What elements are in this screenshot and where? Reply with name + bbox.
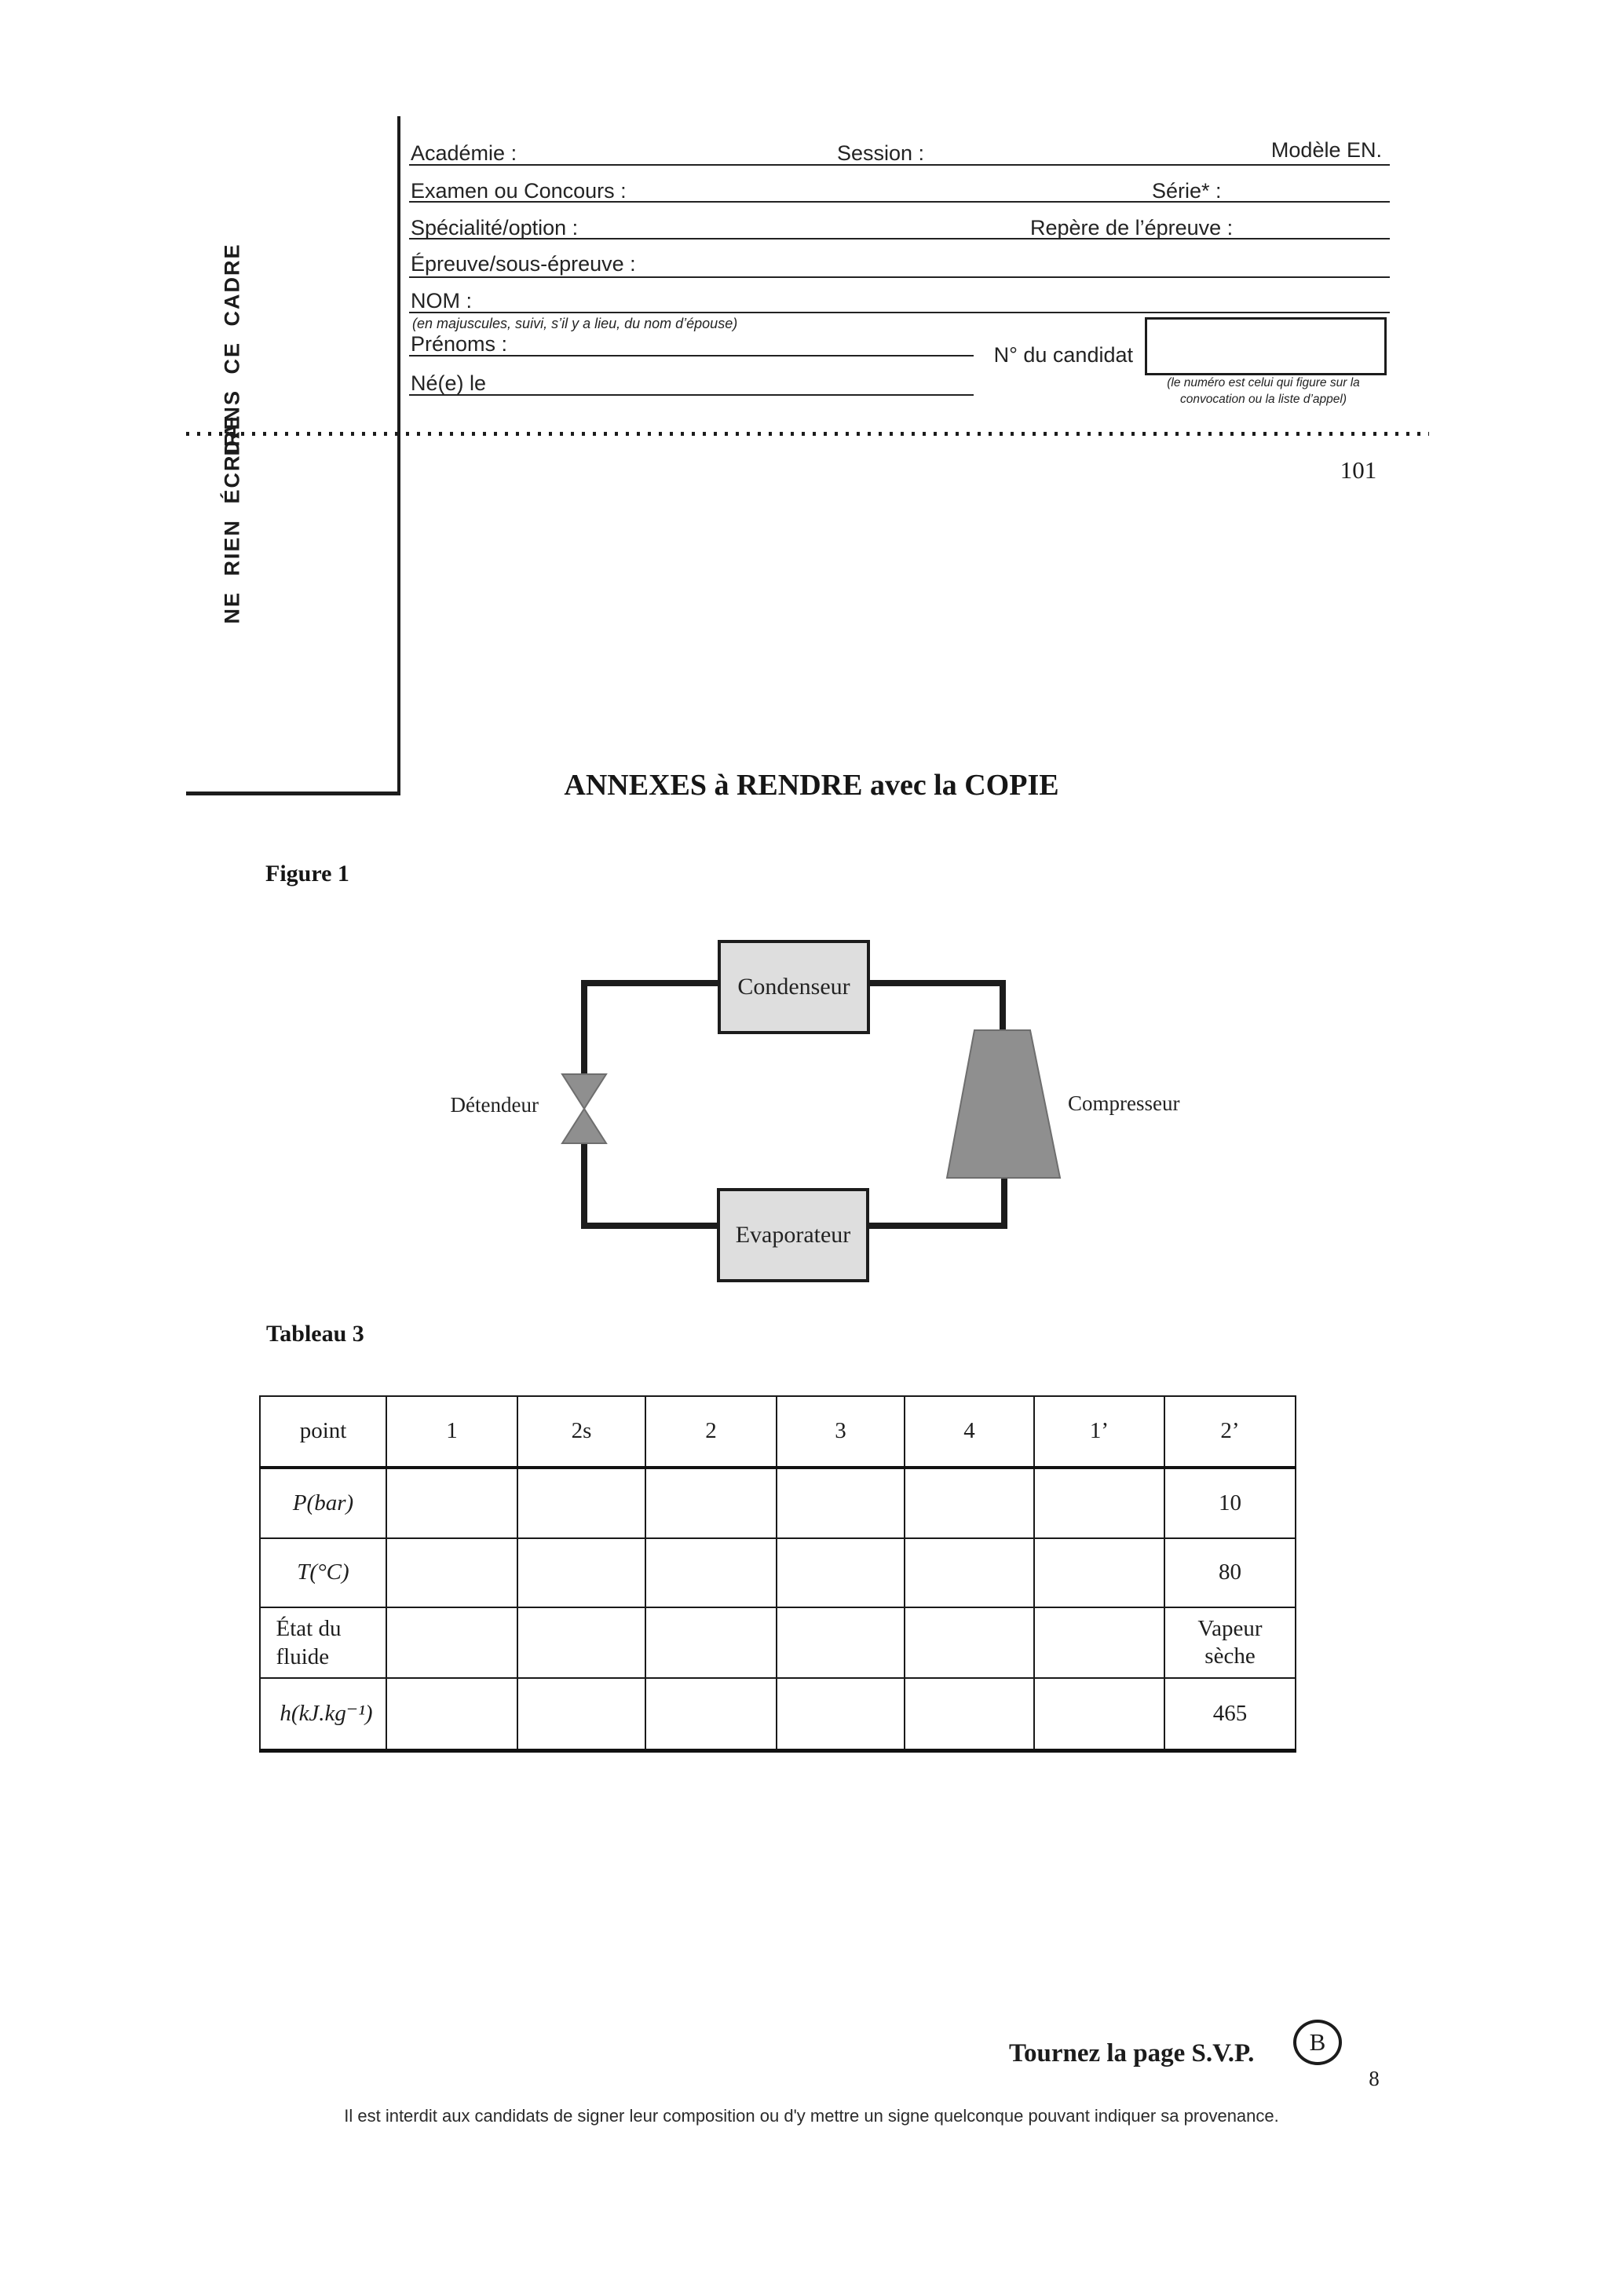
field-line-academie [409, 164, 1390, 166]
candidate-note-line1: (le numéro est celui qui figure sur la [1145, 375, 1382, 392]
table-cell-empty [777, 1678, 905, 1750]
table-cell-empty [517, 1468, 645, 1538]
label-serie: Série* : [1152, 179, 1222, 203]
table-cell-enthalpy-2prime: 465 [1164, 1678, 1296, 1750]
evaporator-box: Evaporateur [717, 1188, 869, 1282]
header-cell-2prime: 2’ [1164, 1396, 1296, 1468]
table-cell-empty [645, 1678, 777, 1750]
table-cell-empty [386, 1607, 517, 1678]
row-label-state-text: État du fluide [276, 1614, 371, 1672]
table-row-state: État du fluide Vapeur sèche [260, 1607, 1296, 1678]
table-cell-empty [645, 1538, 777, 1607]
table-cell-empty [777, 1607, 905, 1678]
candidate-note-line2: convocation ou la liste d’appel) [1145, 392, 1382, 408]
row-label-state: État du fluide [260, 1607, 386, 1678]
field-line-prenoms [409, 355, 974, 356]
table-cell-temperature-2prime: 80 [1164, 1538, 1296, 1607]
row-label-enthalpy: h(kJ.kg⁻¹) [260, 1678, 386, 1750]
pipe-right-lower [1001, 1175, 1007, 1229]
perforation-dotted-line [186, 432, 1429, 436]
header-cell-1prime: 1’ [1034, 1396, 1164, 1468]
page-code: 101 [1319, 456, 1398, 484]
label-specialite: Spécialité/option : [411, 216, 578, 240]
header-cell-4: 4 [905, 1396, 1034, 1468]
frame-vertical-line [397, 116, 400, 794]
turn-page-notice: Tournez la page S.V.P. [1009, 2039, 1254, 2068]
table-cell-empty [905, 1538, 1034, 1607]
page-number: 8 [1358, 2067, 1390, 2091]
table-cell-empty [1034, 1538, 1164, 1607]
label-modele: Modèle EN. [1225, 138, 1382, 163]
series-b-badge: B [1293, 2020, 1342, 2065]
table-row-pressure: P(bar) 10 [260, 1468, 1296, 1538]
table-cell-empty [905, 1678, 1034, 1750]
header-cell-3: 3 [777, 1396, 905, 1468]
compressor-label: Compresseur [1068, 1091, 1179, 1116]
figure-1-label: Figure 1 [265, 861, 349, 887]
field-line-specialite [409, 238, 1390, 239]
exam-annex-page: DANS CE CADRE NE RIEN ÉCRIRE Académie : … [0, 0, 1623, 2296]
table-cell-empty [905, 1468, 1034, 1538]
table-cell-empty [386, 1468, 517, 1538]
table-cell-empty [1034, 1607, 1164, 1678]
label-ne-le: Né(e) le [411, 371, 486, 396]
series-b-letter: B [1310, 2028, 1326, 2057]
pipe-left-upper [581, 980, 587, 1079]
table-cell-empty [645, 1468, 777, 1538]
header-cell-point: point [260, 1396, 386, 1468]
table-cell-empty [386, 1538, 517, 1607]
label-examen: Examen ou Concours : [411, 179, 627, 203]
header-cell-1: 1 [386, 1396, 517, 1468]
tableau-3: point 1 2s 2 3 4 1’ 2’ P(bar) 10 T(°C) [259, 1395, 1296, 1753]
nom-note: (en majuscules, suivi, s’il y a lieu, du… [412, 316, 737, 332]
annexes-title: ANNEXES à RENDRE avec la COPIE [0, 768, 1623, 803]
label-repere: Repère de l’épreuve : [1030, 216, 1233, 240]
pipe-top-right [862, 980, 1006, 986]
row-label-pressure: P(bar) [260, 1468, 386, 1538]
table-cell-state-2prime: Vapeur sèche [1164, 1607, 1296, 1678]
label-candidat: N° du candidat [974, 343, 1133, 367]
label-prenoms: Prénoms : [411, 332, 507, 356]
pipe-right-upper [1000, 980, 1006, 1035]
frame-note-bottom: NE RIEN ÉCRIRE [221, 414, 245, 623]
label-nom: NOM : [411, 289, 472, 313]
label-epreuve: Épreuve/sous-épreuve : [411, 252, 636, 276]
field-line-epreuve [409, 276, 1390, 278]
table-cell-empty [517, 1607, 645, 1678]
table-cell-empty [386, 1678, 517, 1750]
header-cell-2s: 2s [517, 1396, 645, 1468]
pipe-left-lower [581, 1139, 587, 1229]
table-cell-empty [1034, 1678, 1164, 1750]
evaporator-label: Evaporateur [736, 1222, 851, 1249]
table-row-enthalpy: h(kJ.kg⁻¹) 465 [260, 1678, 1296, 1750]
pipe-bottom-left [581, 1223, 722, 1229]
row-label-temperature: T(°C) [260, 1538, 386, 1607]
table-cell-empty [1034, 1468, 1164, 1538]
field-line-nom [409, 312, 1390, 313]
candidate-number-box [1145, 317, 1387, 375]
field-line-examen [409, 201, 1390, 203]
label-academie: Académie : [411, 141, 517, 166]
table-row-temperature: T(°C) 80 [260, 1538, 1296, 1607]
table-header-row: point 1 2s 2 3 4 1’ 2’ [260, 1396, 1296, 1468]
table-cell-empty [517, 1538, 645, 1607]
pipe-bottom-right [862, 1223, 1006, 1229]
pipe-top-left [581, 980, 722, 986]
table-cell-empty [905, 1607, 1034, 1678]
table-cell-pressure-2prime: 10 [1164, 1468, 1296, 1538]
anti-signing-warning: Il est interdit aux candidats de signer … [0, 2106, 1623, 2126]
condenser-box: Condenseur [718, 940, 870, 1034]
compressor-icon [945, 1029, 1062, 1179]
condenser-label: Condenseur [737, 974, 850, 1000]
tableau-3-label: Tableau 3 [266, 1321, 364, 1347]
label-session: Session : [837, 141, 924, 166]
candidate-number-note: (le numéro est celui qui figure sur la c… [1145, 375, 1382, 408]
header-cell-2: 2 [645, 1396, 777, 1468]
field-line-ne-le [409, 394, 974, 396]
table-cell-empty [777, 1468, 905, 1538]
table-cell-empty [777, 1538, 905, 1607]
table-cell-empty [645, 1607, 777, 1678]
expansion-valve-label: Détendeur [416, 1093, 539, 1117]
expansion-valve-icon [556, 1073, 612, 1144]
state-2prime-text: Vapeur sèche [1179, 1615, 1281, 1670]
table-cell-empty [517, 1678, 645, 1750]
